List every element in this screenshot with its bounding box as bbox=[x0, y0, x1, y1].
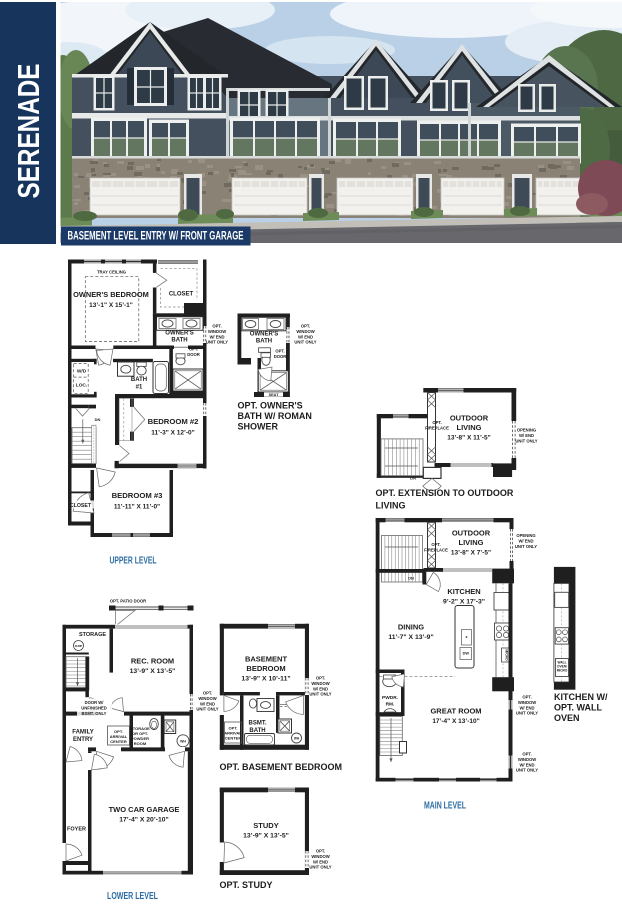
svg-text:13’-8" X 7’-5": 13’-8" X 7’-5" bbox=[451, 550, 491, 557]
svg-text:WH: WH bbox=[294, 737, 300, 741]
svg-text:OPT.: OPT. bbox=[522, 752, 531, 757]
svg-text:CLOSET: CLOSET bbox=[70, 503, 92, 509]
svg-text:BATH: BATH bbox=[256, 339, 272, 345]
svg-text:FOYER: FOYER bbox=[67, 827, 86, 833]
svg-text:WINDOW: WINDOW bbox=[198, 696, 216, 701]
svg-text:CENTER: CENTER bbox=[110, 739, 127, 744]
svg-text:STUDY: STUDY bbox=[253, 821, 278, 830]
svg-text:KITCHEN: KITCHEN bbox=[447, 587, 480, 596]
svg-text:UNIT ONLY: UNIT ONLY bbox=[206, 340, 228, 345]
svg-text:OPT. WALL: OPT. WALL bbox=[554, 703, 602, 713]
svg-text:UNIT ONLY: UNIT ONLY bbox=[294, 340, 316, 345]
svg-text:W/ END: W/ END bbox=[298, 334, 313, 339]
svg-text:BEDROOM: BEDROOM bbox=[246, 664, 285, 673]
svg-text:LOWER LEVEL: LOWER LEVEL bbox=[107, 890, 158, 902]
svg-text:UNIT ONLY: UNIT ONLY bbox=[309, 692, 331, 697]
svg-text:OPT.: OPT. bbox=[432, 420, 441, 425]
svg-text:WINDOW: WINDOW bbox=[518, 700, 536, 705]
svg-text:13’-9" X 10’-11": 13’-9" X 10’-11" bbox=[241, 676, 290, 683]
svg-text:W/ END: W/ END bbox=[518, 538, 533, 543]
svg-text:W/ END: W/ END bbox=[209, 334, 224, 339]
svg-text:OPENING: OPENING bbox=[516, 533, 535, 538]
svg-text:LIVING: LIVING bbox=[458, 538, 483, 547]
svg-text:DN: DN bbox=[95, 417, 101, 422]
svg-text:SHOWER: SHOWER bbox=[238, 422, 279, 432]
svg-text:FIREPLACE: FIREPLACE bbox=[424, 547, 448, 552]
svg-text:OPT.: OPT. bbox=[275, 349, 284, 354]
svg-text:BATH: BATH bbox=[131, 377, 147, 383]
svg-text:OPT.: OPT. bbox=[522, 695, 531, 700]
svg-text:OWNER'S: OWNER'S bbox=[165, 331, 193, 337]
svg-text:ROOM: ROOM bbox=[134, 741, 147, 746]
svg-text:SUMP: SUMP bbox=[75, 644, 83, 648]
svg-text:13’-1" X 15’-1": 13’-1" X 15’-1" bbox=[89, 302, 133, 309]
svg-text:UNIT ONLY: UNIT ONLY bbox=[516, 711, 538, 716]
svg-text:OUTDOOR: OUTDOOR bbox=[450, 414, 489, 423]
svg-text:WINDOW: WINDOW bbox=[311, 681, 329, 686]
svg-text:W/ END: W/ END bbox=[200, 701, 215, 706]
svg-text:SEAT: SEAT bbox=[269, 393, 280, 397]
svg-text:CLOSET: CLOSET bbox=[169, 292, 194, 298]
svg-text:LIVING: LIVING bbox=[376, 501, 406, 511]
svg-text:BEDROOM #2: BEDROOM #2 bbox=[148, 417, 199, 426]
svg-text:OPT.: OPT. bbox=[212, 324, 221, 329]
svg-text:11’-7" X 13’-9": 11’-7" X 13’-9" bbox=[388, 634, 433, 641]
svg-text:BASEMENT LEVEL ENTRY W/ FRONT: BASEMENT LEVEL ENTRY W/ FRONT GARAGE bbox=[68, 229, 244, 243]
svg-text:OPT. BASEMENT BEDROOM: OPT. BASEMENT BEDROOM bbox=[220, 762, 343, 772]
svg-text:13’-9" X 13’-5": 13’-9" X 13’-5" bbox=[243, 833, 289, 840]
svg-text:11’-11" X 11’-0": 11’-11" X 11’-0" bbox=[114, 504, 160, 511]
svg-text:OPT. STUDY: OPT. STUDY bbox=[220, 880, 273, 890]
svg-text:LIVING: LIVING bbox=[456, 423, 481, 432]
svg-text:FIREPLACE: FIREPLACE bbox=[425, 425, 449, 430]
svg-text:OPT.: OPT. bbox=[316, 849, 325, 854]
svg-text:17’-4" X 13’-10": 17’-4" X 13’-10" bbox=[432, 718, 479, 725]
svg-text:TWO CAR GARAGE: TWO CAR GARAGE bbox=[109, 805, 180, 814]
svg-text:FAMILY: FAMILY bbox=[72, 730, 93, 736]
svg-text:REC. ROOM: REC. ROOM bbox=[131, 657, 174, 666]
svg-text:UNIT ONLY: UNIT ONLY bbox=[516, 768, 538, 773]
svg-text:BEDROOM #3: BEDROOM #3 bbox=[112, 491, 163, 500]
svg-text:MAIN LEVEL: MAIN LEVEL bbox=[424, 800, 466, 812]
svg-text:OWNER'S BEDROOM: OWNER'S BEDROOM bbox=[73, 290, 149, 299]
svg-text:BATH: BATH bbox=[171, 338, 187, 344]
svg-text:W/D: W/D bbox=[77, 369, 87, 375]
svg-text:#1: #1 bbox=[136, 385, 143, 391]
svg-text:BASEMENT: BASEMENT bbox=[245, 655, 288, 664]
svg-text:W/ END: W/ END bbox=[519, 433, 534, 438]
svg-text:KITCHEN W/: KITCHEN W/ bbox=[554, 692, 608, 702]
svg-text:MICRO: MICRO bbox=[557, 669, 568, 673]
svg-text:DOOR W/: DOOR W/ bbox=[85, 700, 105, 705]
svg-text:DN: DN bbox=[408, 576, 414, 581]
svg-text:WINDOW: WINDOW bbox=[311, 854, 329, 859]
svg-text:W/ END: W/ END bbox=[519, 705, 534, 710]
svg-text:W/ END: W/ END bbox=[313, 859, 328, 864]
svg-text:DINING: DINING bbox=[398, 623, 424, 632]
svg-text:WINDOW: WINDOW bbox=[518, 757, 536, 762]
svg-text:OWNER'S: OWNER'S bbox=[250, 332, 278, 338]
svg-text:UNIT ONLY: UNIT ONLY bbox=[515, 438, 537, 443]
svg-text:LOC.: LOC. bbox=[76, 383, 87, 389]
svg-text:WINDOW: WINDOW bbox=[208, 329, 226, 334]
svg-text:OPT. OWNER'S: OPT. OWNER'S bbox=[238, 401, 303, 411]
svg-text:STORAGE: STORAGE bbox=[79, 632, 106, 638]
svg-text:BSMT.: BSMT. bbox=[249, 721, 267, 727]
svg-text:OPT.: OPT. bbox=[189, 347, 198, 352]
svg-text:DN: DN bbox=[410, 476, 416, 481]
svg-text:CENTER: CENTER bbox=[225, 736, 242, 741]
svg-text:SERENADE: SERENADE bbox=[11, 64, 46, 199]
svg-text:WH: WH bbox=[180, 740, 186, 744]
svg-text:UNIT ONLY: UNIT ONLY bbox=[515, 544, 537, 549]
svg-text:GREAT ROOM: GREAT ROOM bbox=[430, 707, 481, 716]
svg-text:UPPER LEVEL: UPPER LEVEL bbox=[110, 555, 157, 567]
svg-text:TRAY CEILING: TRAY CEILING bbox=[97, 270, 126, 275]
svg-text:UNIT ONLY: UNIT ONLY bbox=[309, 865, 331, 870]
svg-text:WINDOW: WINDOW bbox=[296, 329, 314, 334]
svg-text:BSMT. ONLY: BSMT. ONLY bbox=[82, 711, 107, 716]
svg-text:W/ END: W/ END bbox=[519, 762, 534, 767]
svg-text:UNFINISHED: UNFINISHED bbox=[81, 705, 107, 710]
svg-text:W/ END: W/ END bbox=[313, 686, 328, 691]
svg-text:OVEN: OVEN bbox=[554, 713, 580, 723]
svg-text:DOOR: DOOR bbox=[274, 354, 287, 359]
svg-text:OPT. EXTENSION TO OUTDOOR: OPT. EXTENSION TO OUTDOOR bbox=[376, 488, 514, 498]
svg-text:OPT. PATIO DOOR: OPT. PATIO DOOR bbox=[110, 599, 146, 604]
svg-text:RM.: RM. bbox=[386, 702, 395, 708]
svg-text:MICRO: MICRO bbox=[505, 649, 509, 661]
svg-text:UNIT ONLY: UNIT ONLY bbox=[196, 707, 218, 712]
svg-text:PWDR.: PWDR. bbox=[382, 695, 398, 701]
svg-text:OPT.: OPT. bbox=[203, 691, 212, 696]
svg-text:OPT.: OPT. bbox=[316, 676, 325, 681]
svg-text:17’-4" X 20’-10": 17’-4" X 20’-10" bbox=[119, 817, 169, 824]
svg-text:DOOR: DOOR bbox=[187, 352, 200, 357]
svg-text:BATH W/ ROMAN: BATH W/ ROMAN bbox=[238, 411, 312, 421]
svg-text:OPT.: OPT. bbox=[301, 324, 310, 329]
svg-text:13’-9" X 13’-5": 13’-9" X 13’-5" bbox=[130, 668, 176, 675]
svg-text:OUTDOOR: OUTDOOR bbox=[452, 529, 491, 538]
svg-text:ENTRY: ENTRY bbox=[73, 737, 93, 743]
svg-text:OPT.: OPT. bbox=[431, 542, 440, 547]
svg-text:OPENING: OPENING bbox=[517, 428, 536, 433]
svg-text:13’-8" X 11’-5": 13’-8" X 11’-5" bbox=[447, 435, 490, 442]
svg-text:11’-3" X 12’-0": 11’-3" X 12’-0" bbox=[151, 430, 194, 437]
svg-text:9’-2" X 17’-3": 9’-2" X 17’-3" bbox=[443, 599, 485, 606]
svg-text:DW: DW bbox=[463, 652, 470, 656]
